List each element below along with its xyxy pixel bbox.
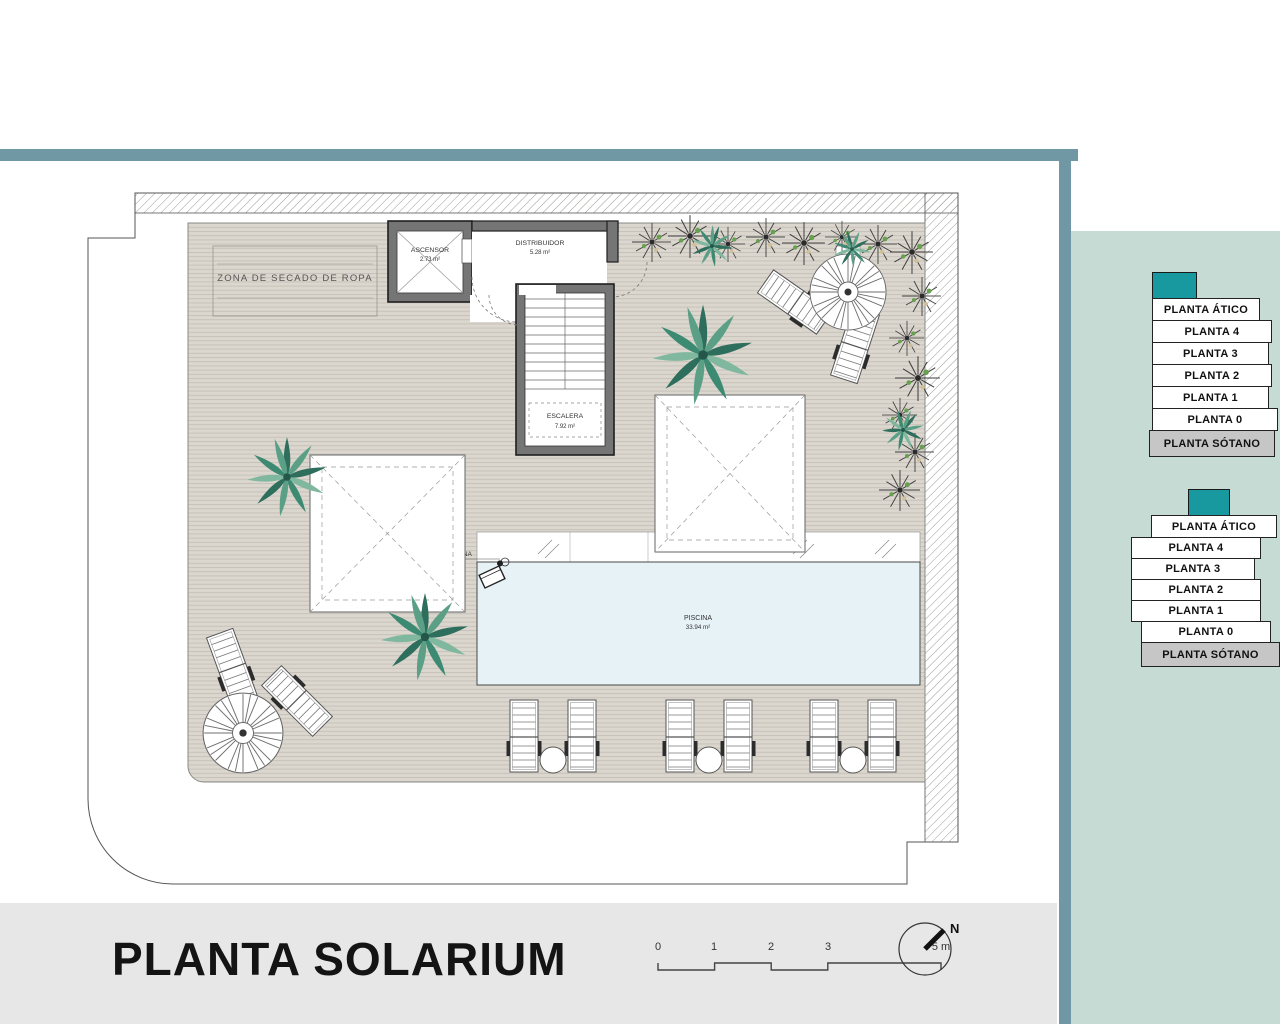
floor-row-planta-2[interactable]: PLANTA 2 xyxy=(1152,364,1272,387)
swimming-pool: PISCINA 33.94 m² xyxy=(477,562,920,685)
solarium-floor-plan: ZONA DE SECADO DE ROPA PISCINA 33.94 m² … xyxy=(80,185,970,890)
skylight-right xyxy=(655,395,805,552)
elevator-name-label: ASCENSOR xyxy=(411,247,449,254)
stairs-name-label: ESCALERA xyxy=(547,413,584,420)
floor-row-planta-3-2[interactable]: PLANTA 3 xyxy=(1131,558,1255,580)
elevator-room: ASCENSOR 2.73 m² xyxy=(388,221,472,302)
floor-row-planta-3[interactable]: PLANTA 3 xyxy=(1152,342,1269,365)
current-floor-indicator-2[interactable] xyxy=(1188,489,1230,516)
pool-name-label: PISCINA xyxy=(684,615,712,622)
scale-tick-1: 1 xyxy=(706,941,722,953)
floor-row-planta-2-2[interactable]: PLANTA 2 xyxy=(1131,579,1261,601)
floor-row-planta-0-2[interactable]: PLANTA 0 xyxy=(1141,621,1271,643)
floor-row-sotano[interactable]: PLANTA SÓTANO xyxy=(1149,430,1275,457)
distributor-name-label: DISTRIBUIDOR xyxy=(516,240,565,247)
scale-tick-3: 3 xyxy=(820,941,836,953)
north-arrow: N xyxy=(890,915,975,990)
floor-row-planta-1[interactable]: PLANTA 1 xyxy=(1152,386,1269,409)
current-floor-indicator[interactable] xyxy=(1152,272,1197,299)
floor-row-sotano-2[interactable]: PLANTA SÓTANO xyxy=(1141,642,1280,667)
north-label: N xyxy=(950,921,959,936)
pool-area-label: 33.94 m² xyxy=(686,624,710,631)
scale-tick-2: 2 xyxy=(763,941,779,953)
page: ZONA DE SECADO DE ROPA PISCINA 33.94 m² … xyxy=(0,0,1280,1024)
skylight-left xyxy=(310,455,465,612)
floor-row-atico-2[interactable]: PLANTA ÁTICO xyxy=(1151,515,1277,538)
floor-row-planta-4[interactable]: PLANTA 4 xyxy=(1152,320,1272,343)
floor-row-planta-1-2[interactable]: PLANTA 1 xyxy=(1131,600,1261,622)
stairs-area-label: 7.92 m² xyxy=(555,424,575,430)
floor-row-atico[interactable]: PLANTA ÁTICO xyxy=(1152,298,1260,321)
distributor-area-label: 5.28 m² xyxy=(530,250,550,256)
page-title: PLANTA SOLARIUM xyxy=(112,932,567,986)
scale-tick-0: 0 xyxy=(650,941,666,953)
top-frame-bar xyxy=(0,149,1078,161)
floor-row-planta-4-2[interactable]: PLANTA 4 xyxy=(1131,537,1261,559)
zona-secado-label: ZONA DE SECADO DE ROPA xyxy=(217,273,373,284)
vertical-frame-bar xyxy=(1059,149,1071,1024)
floor-row-planta-0[interactable]: PLANTA 0 xyxy=(1152,408,1278,431)
elevator-area-label: 2.73 m² xyxy=(420,257,440,263)
